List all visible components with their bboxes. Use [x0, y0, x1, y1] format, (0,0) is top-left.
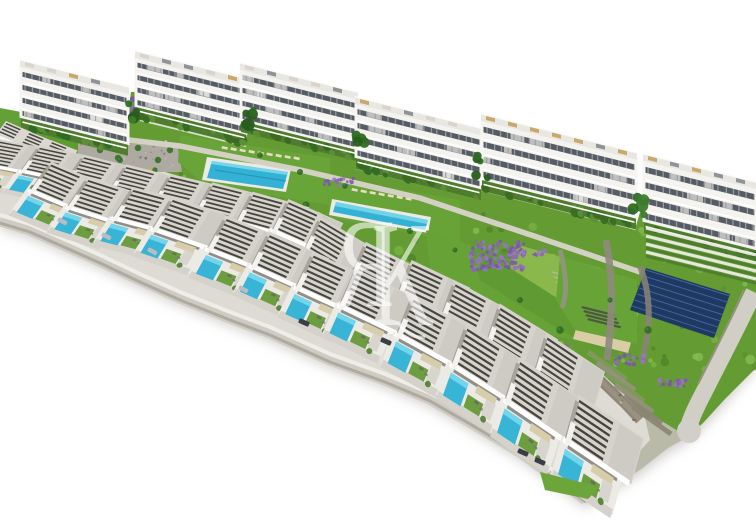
svg-text:K: K [372, 190, 434, 358]
